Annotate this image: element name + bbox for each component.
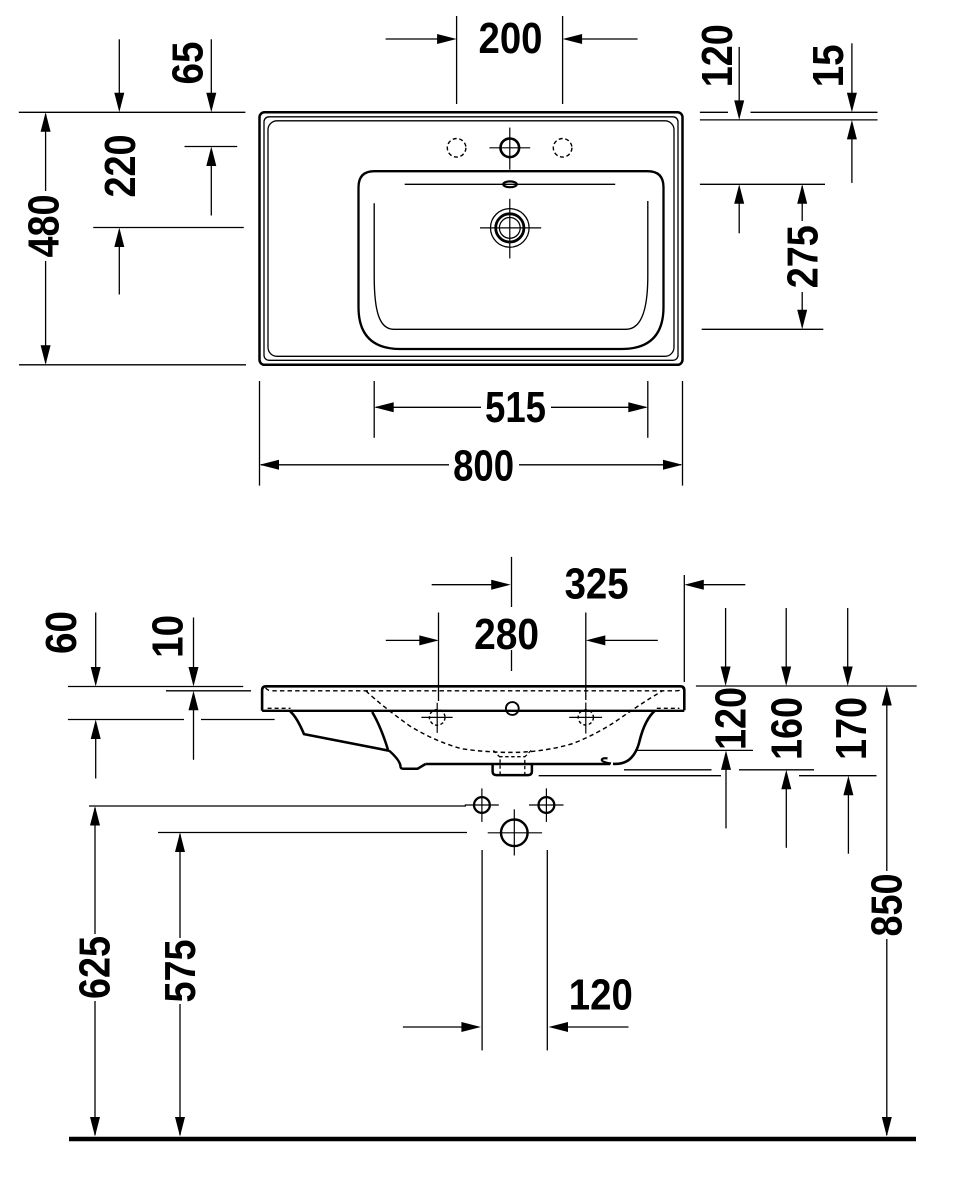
svg-text:275: 275 <box>779 225 827 288</box>
svg-text:220: 220 <box>97 135 145 198</box>
svg-text:575: 575 <box>157 940 205 1003</box>
svg-text:280: 280 <box>474 611 539 659</box>
svg-text:160: 160 <box>764 697 812 760</box>
svg-text:200: 200 <box>479 15 543 63</box>
svg-text:170: 170 <box>828 697 876 760</box>
svg-text:65: 65 <box>165 42 213 85</box>
svg-text:850: 850 <box>863 874 911 937</box>
svg-text:800: 800 <box>453 442 514 490</box>
svg-text:60: 60 <box>38 611 86 654</box>
svg-text:120: 120 <box>707 687 755 750</box>
svg-text:480: 480 <box>21 195 69 258</box>
svg-text:515: 515 <box>485 384 546 432</box>
svg-text:10: 10 <box>144 615 192 658</box>
svg-text:325: 325 <box>565 561 629 609</box>
svg-text:120: 120 <box>569 971 633 1019</box>
svg-text:625: 625 <box>72 936 120 999</box>
svg-text:120: 120 <box>694 24 742 87</box>
svg-text:15: 15 <box>805 44 853 87</box>
